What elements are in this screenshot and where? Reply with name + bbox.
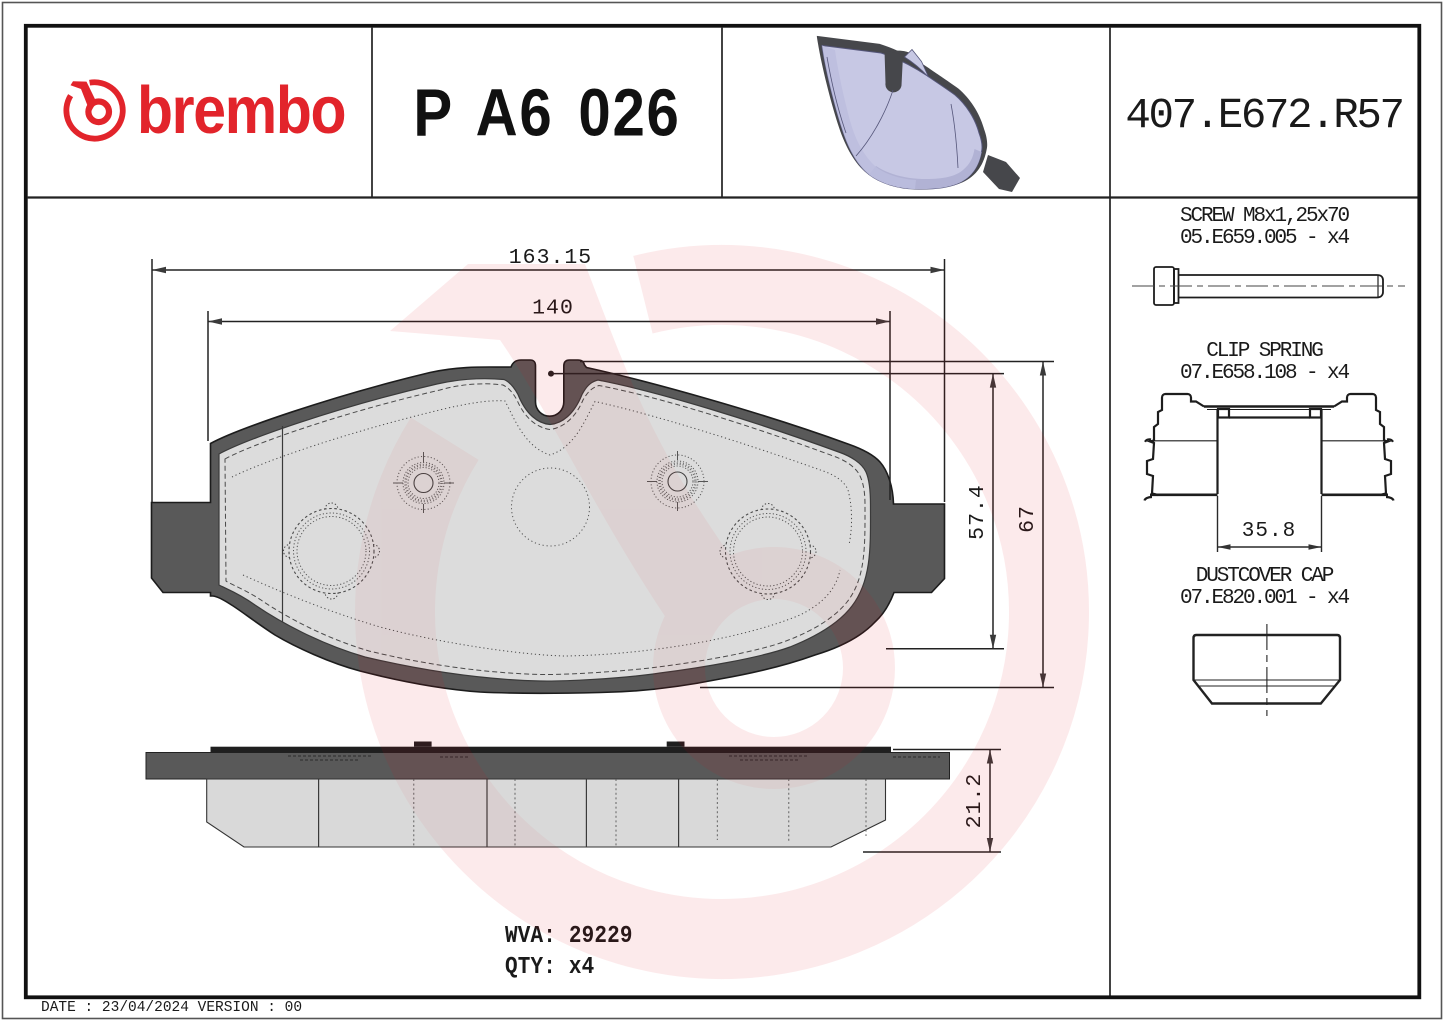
svg-text:05.E659.005 - x4: 05.E659.005 - x4: [1180, 227, 1350, 250]
svg-text:CLIP SPRING: CLIP SPRING: [1206, 340, 1323, 363]
svg-text:407.E672.R57: 407.E672.R57: [1125, 92, 1402, 140]
svg-text:SCREW M8x1,25x70: SCREW M8x1,25x70: [1180, 205, 1350, 228]
svg-text:07.E820.001 - x4: 07.E820.001 - x4: [1180, 587, 1350, 610]
svg-text:35.8: 35.8: [1242, 520, 1296, 543]
svg-text:07.E658.108 - x4: 07.E658.108 - x4: [1180, 362, 1350, 385]
svg-text:P A6 026: P A6 026: [413, 76, 680, 151]
svg-text:DATE : 23/04/2024 VERSION : 00: DATE : 23/04/2024 VERSION : 00: [41, 1000, 302, 1016]
svg-text:DUSTCOVER CAP: DUSTCOVER CAP: [1196, 565, 1334, 588]
svg-text:brembo: brembo: [137, 74, 345, 148]
svg-text:QTY: x4: QTY: x4: [505, 953, 594, 981]
